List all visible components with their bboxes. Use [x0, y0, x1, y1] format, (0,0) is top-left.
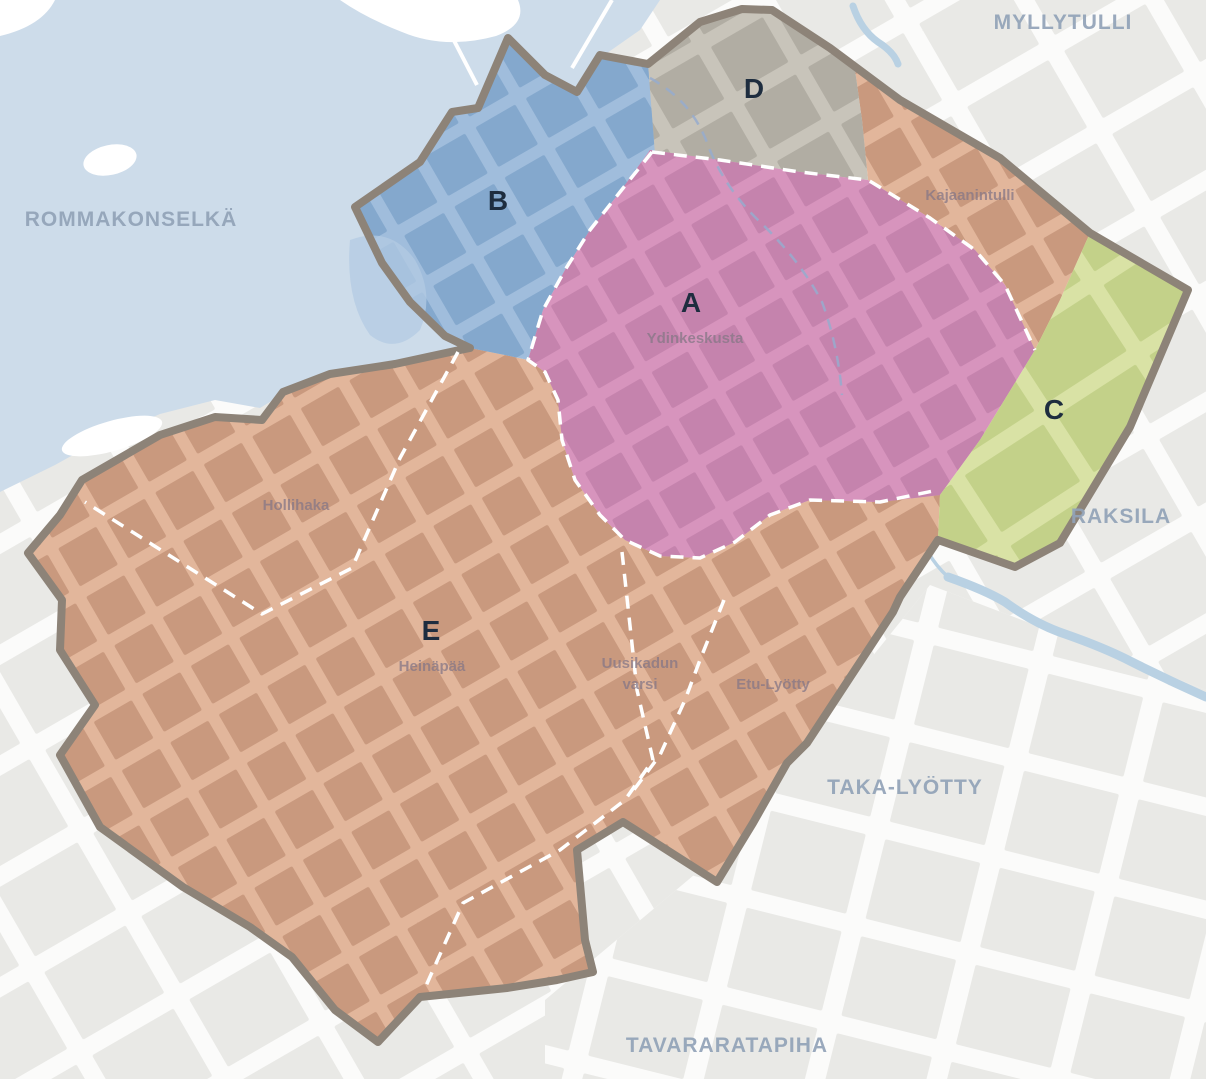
region-label-taka-lyotty: TAKA-LYÖTTY	[827, 776, 983, 799]
district-label-uusikadun-line2: varsi	[622, 676, 657, 693]
district-label-hollihaka: Hollihaka	[263, 497, 330, 514]
region-label-rommakonselka: ROMMAKONSELKÄ	[25, 208, 238, 231]
zone-map-canvas: MYLLYTULLI ROMMAKONSELKÄ RAKSILA TAKA-LY…	[0, 0, 1206, 1079]
district-label-kajaanintulli: Kajaanintulli	[925, 187, 1014, 204]
region-label-raksila: RAKSILA	[1071, 505, 1171, 528]
zone-e-letter: E	[422, 615, 441, 646]
oulu-parking-zone-map: MYLLYTULLI ROMMAKONSELKÄ RAKSILA TAKA-LY…	[0, 0, 1206, 1079]
zone-a-letter: A	[681, 287, 701, 318]
district-label-ydinkeskusta: Ydinkeskusta	[647, 330, 744, 347]
zone-d-letter: D	[744, 73, 764, 104]
region-label-tavararatapiha: TAVARARATAPIHA	[626, 1034, 828, 1057]
zone-b-letter: B	[488, 185, 508, 216]
district-label-uusikadun-line1: Uusikadun	[602, 655, 679, 672]
region-label-myllytulli: MYLLYTULLI	[994, 11, 1133, 34]
district-label-heinapaa: Heinäpää	[399, 658, 466, 675]
district-label-etu-lyotty: Etu-Lyötty	[736, 676, 810, 693]
zone-c-letter: C	[1044, 394, 1064, 425]
